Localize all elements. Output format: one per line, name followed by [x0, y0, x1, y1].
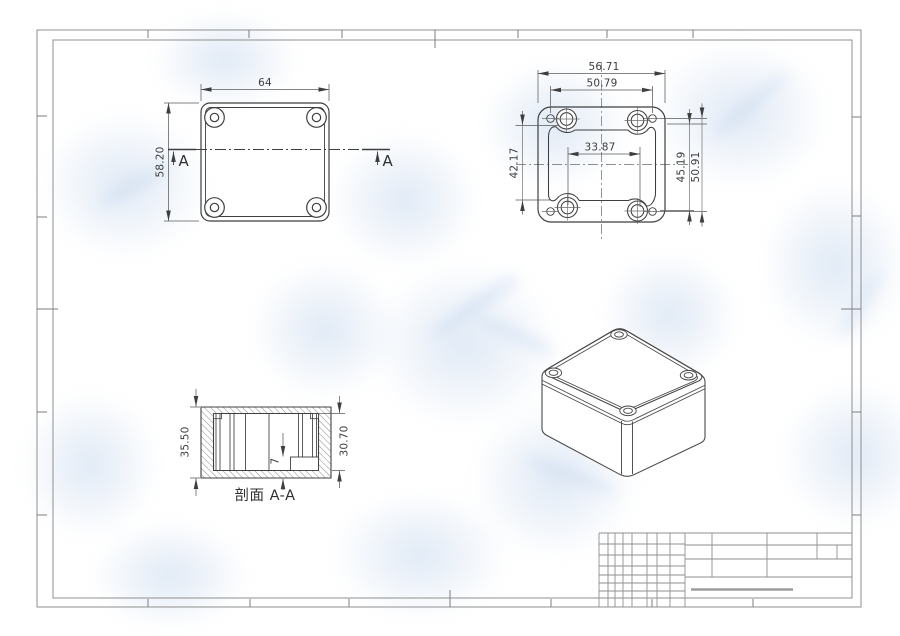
dim-label-cavity-height: 42.17	[509, 147, 521, 178]
top-view-screw-holes	[205, 108, 327, 218]
frame-inner-border	[53, 40, 852, 598]
frame-outer-border	[37, 30, 861, 607]
inside-view-bosses	[557, 109, 648, 221]
title-block	[599, 533, 852, 607]
dim-label-boss-pitch-width: 33.87	[584, 142, 615, 154]
inside-view: 56.71 50.79 33.87 42.17	[509, 61, 708, 240]
screw-hole-inner	[210, 113, 218, 121]
section-step	[291, 457, 319, 471]
iso-silhouette	[542, 329, 705, 477]
dim-label-section-inner-height: 30.70	[339, 425, 351, 456]
title-block-cells	[685, 533, 852, 577]
lid-groove-right	[311, 414, 319, 419]
screw-hole-inner	[312, 203, 320, 211]
top-view-inner-outline	[206, 108, 325, 217]
inside-view-cavity-outline	[549, 127, 656, 206]
screw-hole-inner	[210, 203, 218, 211]
countersink-hole	[611, 330, 627, 340]
countersink-hole	[620, 406, 636, 416]
countersink-hole	[680, 370, 696, 380]
drawing-sheet: 64 58.20 A A	[0, 0, 900, 636]
countersink-hole	[545, 368, 561, 378]
dimension-section-outer-height	[190, 389, 200, 496]
drawing-frame	[37, 30, 861, 607]
dim-label-hole-pitch-height: 50.91	[690, 151, 702, 182]
title-block-fine-grid	[599, 533, 685, 607]
drawing-canvas: 64 58.20 A A	[0, 0, 900, 636]
dim-label-top-height: 58.20	[155, 146, 167, 177]
section-label-right: A	[383, 152, 394, 170]
dim-label-boss-pitch-height: 45.19	[676, 151, 688, 182]
section-label-left: A	[179, 152, 190, 170]
top-view: 64 58.20 A A	[155, 77, 394, 221]
frame-ticks-left	[37, 116, 58, 515]
isometric-view	[542, 329, 705, 477]
dim-label-outer-width: 56.71	[588, 61, 619, 73]
dim-label-top-width: 64	[258, 77, 272, 89]
frame-ticks-right	[841, 117, 861, 515]
frame-ticks-top	[148, 30, 693, 48]
screw-hole-inner	[312, 113, 320, 121]
dimension-cavity-height	[516, 111, 559, 215]
dim-label-section-step: 7	[270, 458, 282, 465]
dim-label-section-outer-height: 35.50	[180, 426, 192, 457]
dimension-boss-pitch-width	[568, 147, 640, 207]
section-caption: 剖面 A-A	[234, 487, 295, 504]
section-view: 35.50 30.70 7 剖面 A-A	[180, 389, 351, 504]
dim-label-hole-pitch-width: 50.79	[586, 78, 617, 90]
